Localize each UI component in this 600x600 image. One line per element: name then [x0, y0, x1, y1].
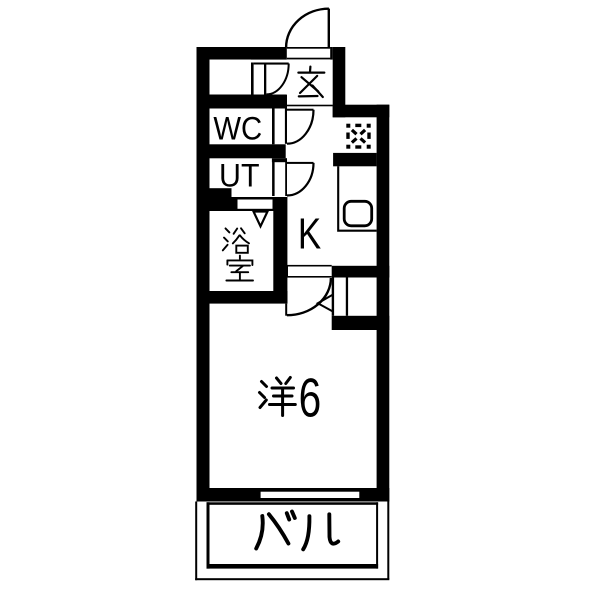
svg-text:6: 6 [299, 366, 322, 428]
svg-text:WC: WC [213, 111, 262, 147]
svg-text:UT: UT [219, 158, 260, 194]
svg-text:K: K [298, 210, 321, 258]
